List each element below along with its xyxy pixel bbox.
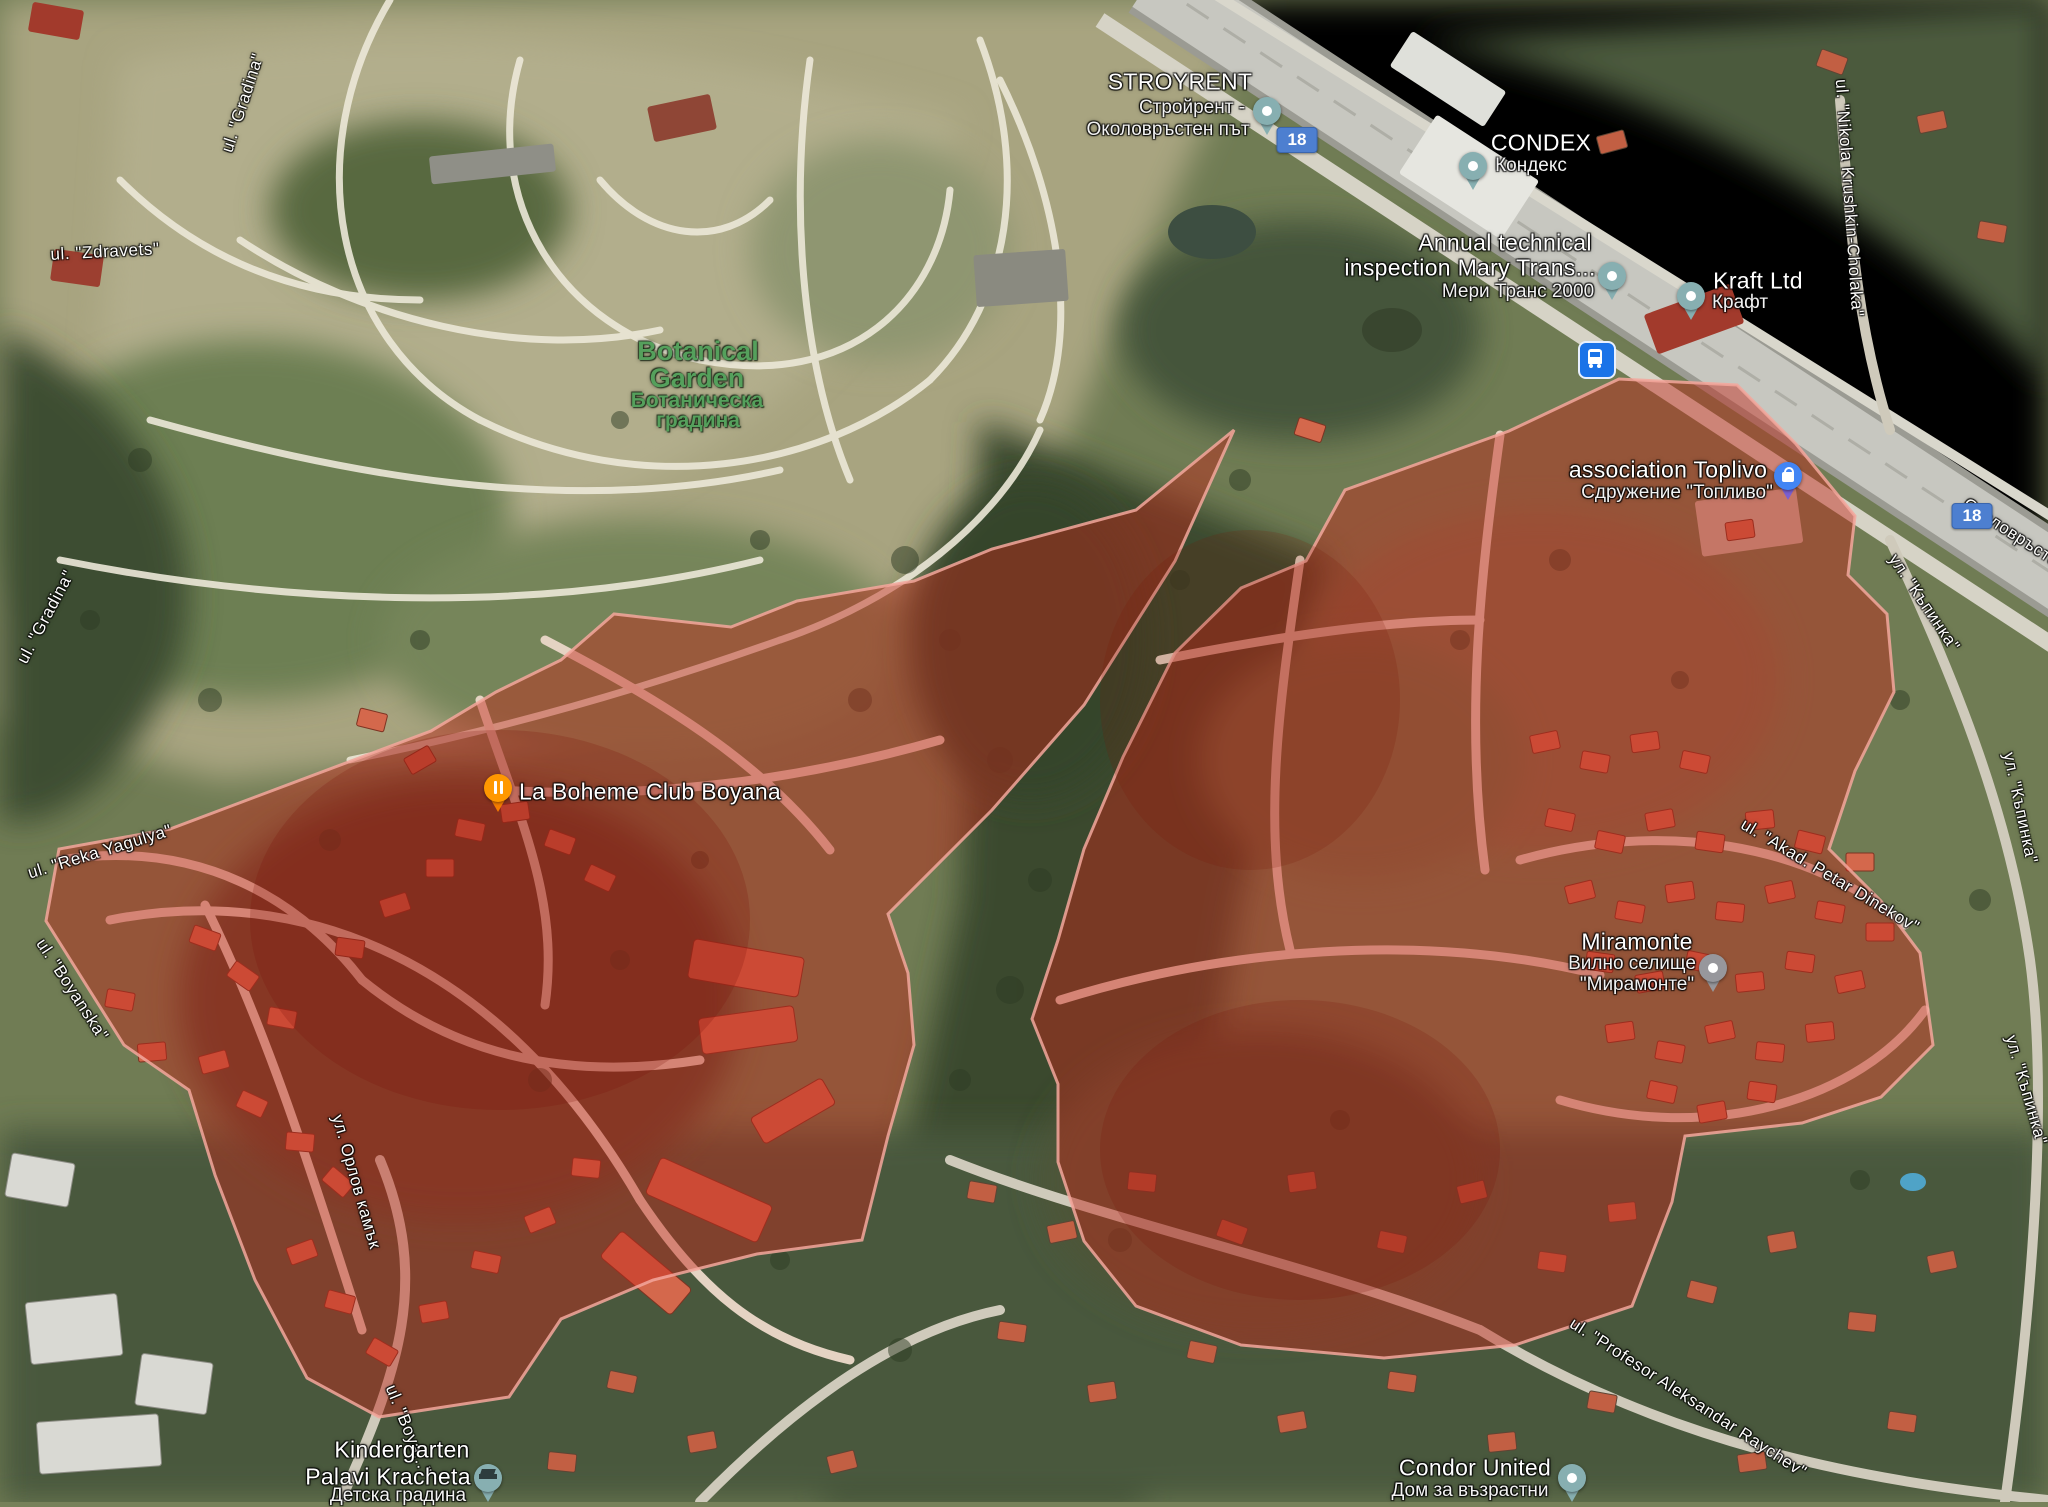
bus-stop-icon[interactable] bbox=[1578, 341, 1616, 379]
route-shield-18-north: 18 bbox=[1277, 127, 1318, 153]
pin-dot-icon bbox=[1607, 271, 1617, 281]
pin-dot-icon bbox=[1262, 106, 1272, 116]
pin-head bbox=[1598, 262, 1626, 290]
condor-place-pin[interactable] bbox=[1557, 1464, 1587, 1502]
kraft-place-pin[interactable] bbox=[1676, 282, 1706, 320]
shopping-bag-icon bbox=[1782, 472, 1794, 482]
stroyrent-place-pin[interactable] bbox=[1252, 97, 1282, 135]
mary-trans-place-pin[interactable] bbox=[1597, 262, 1627, 300]
graduation-cap-icon bbox=[479, 1474, 497, 1479]
pin-dot-icon bbox=[1686, 291, 1696, 301]
pin-head bbox=[1677, 282, 1705, 310]
route-shield-18-east: 18 bbox=[1952, 503, 1993, 529]
pin-head bbox=[474, 1464, 502, 1492]
bus-glyph bbox=[1588, 349, 1602, 364]
pin-head bbox=[1774, 462, 1802, 490]
pin-head bbox=[1558, 1464, 1586, 1492]
pin-head bbox=[1253, 97, 1281, 125]
condex-place-pin[interactable] bbox=[1458, 152, 1488, 190]
miramonte-place-pin[interactable] bbox=[1698, 954, 1728, 992]
satellite-basemap bbox=[0, 0, 2048, 1502]
pin-dot-icon bbox=[1468, 161, 1478, 171]
pin-head bbox=[1699, 954, 1727, 982]
pin-dot-icon bbox=[1567, 1473, 1577, 1483]
restaurant-icon bbox=[494, 781, 497, 794]
toplivo-shopping-pin[interactable] bbox=[1773, 462, 1803, 500]
pin-head bbox=[1459, 152, 1487, 180]
pin-head bbox=[484, 774, 512, 802]
satellite-map[interactable]: ul. "Zdravets" ul. "Gradina" ul. "Gradin… bbox=[0, 0, 2048, 1502]
kindergarten-school-pin[interactable] bbox=[473, 1464, 503, 1502]
pin-dot-icon bbox=[1708, 963, 1718, 973]
la-boheme-restaurant-pin[interactable] bbox=[483, 774, 513, 812]
